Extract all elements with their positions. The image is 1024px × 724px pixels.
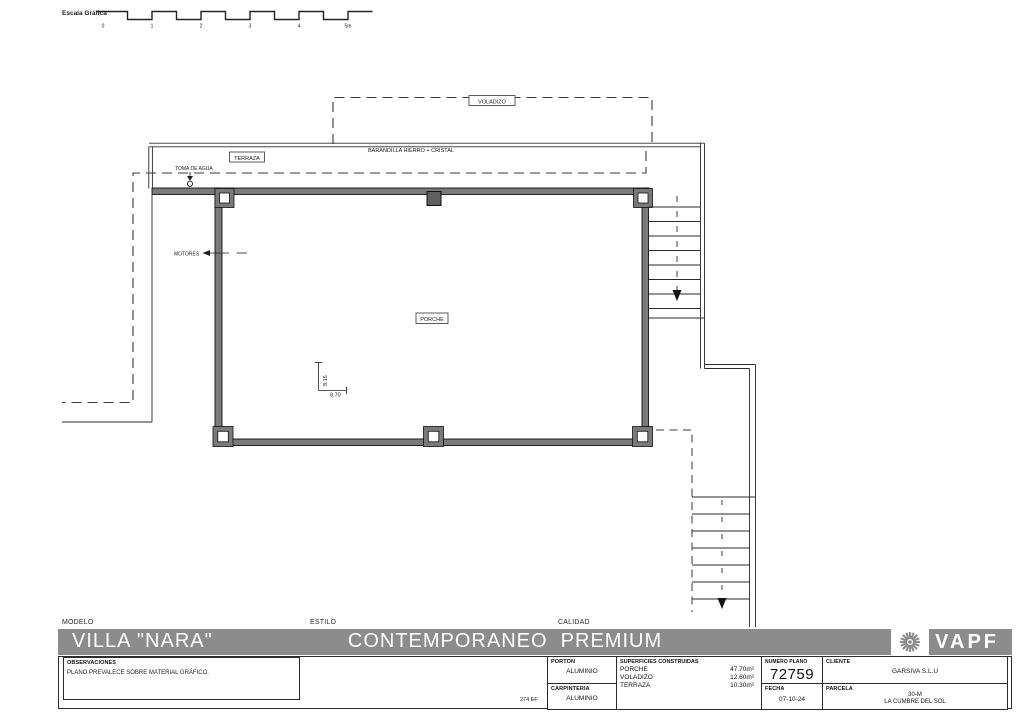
terraza-label-box: TERRAZA (230, 152, 265, 162)
lower-stairs-dashed-edge (656, 430, 692, 612)
superficie-row: PORCHE 47.70m² (617, 666, 761, 674)
style-name: CONTEMPORANEO PREMIUM (298, 630, 712, 653)
superficie-value: 12.60m² (730, 674, 754, 682)
porton-label: PORTON (548, 657, 616, 665)
porche-label-box: PORCHE (416, 313, 448, 324)
observaciones-box: OBSERVACIONES PLANO PREVALECE SOBRE MATE… (63, 657, 300, 700)
pillar (213, 427, 233, 447)
cliente-label: CLIENTE (823, 657, 1007, 665)
reference-code: 274 EF (520, 697, 538, 703)
carpinteria-value: ALUMINIO (548, 695, 616, 702)
pillar (633, 427, 653, 447)
scale-tick: 0 (102, 24, 105, 30)
title-band: VILLA "NARA" CONTEMPORANEO PREMIUM (58, 629, 1012, 655)
floor-plan-drawing: Escala Gráfica 0 1 2 3 4 5m VOLADIZO BAR… (0, 0, 1024, 724)
parcela-location: LA CUMBRE DEL SOL (823, 699, 1007, 706)
dimension-vertical: 8.15 (323, 375, 329, 386)
superficies-box: SUPERFICIES CONSTRUIDAS PORCHE 47.70m² V… (616, 656, 762, 710)
wall-right (642, 188, 649, 446)
pillar (424, 427, 444, 447)
superficie-row: VOLADIZO 12.60m² (617, 674, 761, 682)
wall-left (215, 188, 222, 446)
scale-bar-meander (96, 12, 373, 20)
porton-value: ALUMINIO (548, 668, 616, 675)
floor-plan-sheet: Escala Gráfica 0 1 2 3 4 5m VOLADIZO BAR… (0, 0, 1024, 724)
parcela-label: PARCELA (823, 684, 1007, 692)
building-walls (152, 188, 649, 446)
toma-de-agua: TOMA DE AGUA (175, 166, 213, 186)
sunburst-icon (894, 629, 926, 655)
calidad-field-label: CALIDAD (558, 619, 590, 626)
fecha-value: 07-10-24 (762, 696, 822, 703)
fecha-label: FECHA (762, 684, 822, 692)
porton-box: PORTON ALUMINIO (547, 656, 617, 684)
cliente-box: CLIENTE GARSIVA S.L.U (822, 656, 1008, 684)
toma-de-agua-label: TOMA DE AGUA (175, 166, 213, 172)
carpinteria-box: CARPINTERIA ALUMINIO (547, 683, 617, 710)
superficie-value: 47.70m² (730, 666, 754, 674)
numero-plano-label: NUMERO PLANO (762, 657, 822, 665)
observaciones-text: PLANO PREVALECE SOBRE MATERIAL GRÁFICO. (64, 666, 299, 676)
scale-bar-ticks: 0 1 2 3 4 5m (102, 24, 352, 30)
barandilla-label: BARANDILLA HIERRO + CRISTAL (368, 148, 454, 154)
numero-plano-box: NUMERO PLANO 72759 (761, 656, 823, 684)
cliente-value: GARSIVA S.L.U (823, 668, 1007, 675)
superficies-label: SUPERFICIES CONSTRUIDAS (617, 657, 761, 666)
superficie-name: PORCHE (620, 666, 648, 674)
voladizo-outline: VOLADIZO (333, 96, 652, 145)
motores-label: MOTORES (174, 252, 200, 258)
toma-de-agua-arrow (187, 176, 193, 181)
scale-tick: 2 (200, 24, 203, 30)
pillar (215, 189, 234, 208)
porche-label: PORCHE (420, 317, 444, 323)
fecha-box: FECHA 07-10-24 (761, 683, 823, 710)
numero-plano-value: 72759 (762, 666, 822, 683)
dimension-horizontal: 8.70 (330, 393, 341, 399)
parcela-box: PARCELA 30-M LA CUMBRE DEL SOL (822, 683, 1008, 710)
estilo-field-label: ESTILO (310, 619, 336, 626)
scale-tick: 4 (298, 24, 301, 30)
parcela-value: 30-M (823, 692, 1007, 699)
vapf-logo: VAPF (891, 629, 1007, 655)
stairs-down-arrow (718, 598, 727, 609)
observaciones-label: OBSERVACIONES (64, 658, 299, 666)
column-block (427, 192, 441, 206)
carpinteria-label: CARPINTERIA (548, 684, 616, 692)
scale-tick: 1 (151, 24, 154, 30)
outer-boundary-right (701, 143, 756, 627)
scale-tick: 3 (249, 24, 252, 30)
superficie-name: TERRAZA (620, 682, 650, 690)
modelo-field-label: MODELO (62, 619, 94, 626)
voladizo-label: VOLADIZO (478, 99, 507, 105)
model-name: VILLA "NARA" (72, 630, 213, 653)
stairs-down-arrow (673, 290, 682, 301)
brand-name: VAPF (929, 629, 1007, 655)
plot-edge-left (62, 195, 152, 423)
lower-staircase (692, 497, 756, 599)
dimension-marker (315, 363, 347, 395)
scale-bar: Escala Gráfica 0 1 2 3 4 5m (62, 10, 373, 30)
superficie-value: 10.30m² (730, 682, 754, 690)
superficie-row: TERRAZA 10.30m² (617, 682, 761, 690)
superficie-name: VOLADIZO (620, 674, 653, 682)
terraza-label: TERRAZA (234, 156, 260, 162)
motores-annotation: MOTORES (174, 250, 247, 258)
water-tap-symbol (187, 181, 192, 186)
scale-tick: 5m (345, 24, 352, 30)
pillar (634, 189, 653, 208)
